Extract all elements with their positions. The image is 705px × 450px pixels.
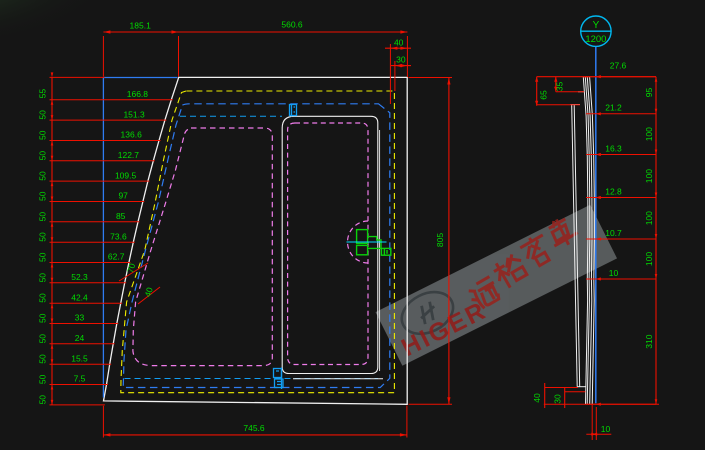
- svg-text:50: 50: [38, 374, 48, 384]
- svg-text:55: 55: [38, 89, 48, 99]
- svg-text:62.7: 62.7: [108, 252, 125, 262]
- svg-text:100: 100: [644, 169, 654, 183]
- svg-text:65: 65: [539, 90, 549, 100]
- svg-text:50: 50: [38, 395, 48, 405]
- svg-text:15.5: 15.5: [71, 353, 88, 363]
- svg-text:42.4: 42.4: [71, 292, 88, 302]
- svg-text:560.6: 560.6: [281, 20, 303, 30]
- svg-text:50: 50: [38, 293, 48, 303]
- svg-text:805: 805: [435, 233, 445, 247]
- svg-text:50: 50: [38, 334, 48, 344]
- svg-text:50: 50: [38, 191, 48, 201]
- svg-text:30: 30: [396, 54, 406, 64]
- svg-text:95: 95: [644, 88, 654, 98]
- svg-text:50: 50: [38, 130, 48, 140]
- svg-text:50: 50: [38, 354, 48, 364]
- svg-text:50: 50: [38, 232, 48, 242]
- svg-text:73.6: 73.6: [110, 231, 127, 241]
- svg-text:50: 50: [38, 110, 48, 120]
- svg-text:50: 50: [38, 171, 48, 181]
- svg-text:35: 35: [555, 82, 565, 92]
- svg-text:122.7: 122.7: [118, 150, 140, 160]
- svg-text:24: 24: [75, 333, 85, 343]
- svg-text:100: 100: [644, 127, 654, 141]
- svg-text:40: 40: [394, 37, 404, 47]
- svg-text:166.8: 166.8: [127, 89, 149, 99]
- svg-text:151.3: 151.3: [123, 109, 145, 119]
- svg-text:185.1: 185.1: [130, 21, 152, 31]
- svg-text:27.6: 27.6: [610, 61, 627, 71]
- svg-text:97: 97: [118, 191, 128, 201]
- svg-text:50: 50: [38, 212, 48, 222]
- svg-text:50: 50: [38, 313, 48, 323]
- svg-text:100: 100: [644, 252, 654, 266]
- svg-text:52.3: 52.3: [71, 272, 88, 282]
- svg-text:10: 10: [609, 268, 619, 278]
- svg-text:16.3: 16.3: [605, 143, 622, 153]
- svg-text:10: 10: [601, 424, 611, 434]
- svg-text:85: 85: [116, 211, 126, 221]
- svg-text:50: 50: [38, 252, 48, 262]
- svg-text:100: 100: [644, 211, 654, 225]
- svg-text:310: 310: [644, 334, 654, 348]
- svg-text:50: 50: [38, 151, 48, 161]
- svg-text:50: 50: [38, 273, 48, 283]
- svg-text:Y: Y: [593, 20, 600, 31]
- svg-text:33: 33: [75, 313, 85, 323]
- svg-text:40: 40: [532, 393, 542, 403]
- svg-text:21.2: 21.2: [605, 103, 622, 113]
- svg-text:12.8: 12.8: [605, 186, 622, 196]
- svg-text:30: 30: [553, 394, 563, 404]
- svg-text:136.6: 136.6: [121, 130, 143, 140]
- svg-text:109.5: 109.5: [115, 170, 137, 180]
- svg-text:7.5: 7.5: [74, 374, 86, 384]
- svg-text:10.7: 10.7: [605, 228, 622, 238]
- svg-text:1200: 1200: [585, 34, 606, 45]
- svg-text:745.6: 745.6: [243, 423, 265, 433]
